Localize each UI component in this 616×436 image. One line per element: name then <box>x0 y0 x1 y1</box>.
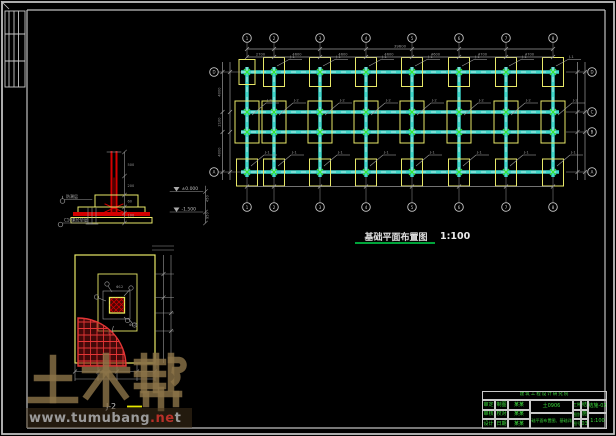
elevation-bottom-label: -1.500 <box>182 207 197 213</box>
svg-text:B: B <box>591 130 594 135</box>
drawing-number: 结施-03 <box>588 400 607 413</box>
svg-text:1: 1 <box>246 205 249 210</box>
svg-text:200: 200 <box>128 184 135 188</box>
callout-upper-label: 防潮层 <box>66 193 78 199</box>
svg-text:J-2: J-2 <box>525 98 531 103</box>
svg-text:J-1: J-1 <box>521 54 527 59</box>
svg-text:Φ12: Φ12 <box>116 285 123 289</box>
callout-bubble-icon <box>58 222 63 227</box>
svg-text:A: A <box>213 170 216 175</box>
svg-text:4000: 4000 <box>218 87 222 97</box>
svg-text:J-1: J-1 <box>291 150 297 155</box>
elevation-mark-icon <box>174 208 180 213</box>
svg-text:J-2: J-2 <box>293 98 299 103</box>
svg-text:J-2: J-2 <box>266 98 272 103</box>
svg-text:J-1: J-1 <box>474 54 480 59</box>
svg-text:3: 3 <box>319 205 322 210</box>
svg-text:J-2: J-2 <box>431 98 437 103</box>
foundation-section-detail: ±0.000 -1.500 500 200 60 100 450 950 防潮层… <box>58 150 209 227</box>
svg-text:J-1: J-1 <box>381 54 387 59</box>
svg-text:7: 7 <box>505 205 508 210</box>
svg-text:D: D <box>590 70 593 75</box>
watermark-logo-icon <box>76 316 128 366</box>
plan-scale: 1:100 <box>440 231 470 242</box>
svg-text:500: 500 <box>128 163 135 167</box>
svg-text:60: 60 <box>128 200 132 204</box>
svg-text:950: 950 <box>206 212 210 219</box>
svg-text:J-2: J-2 <box>478 98 484 103</box>
svg-text:4: 4 <box>365 205 368 210</box>
svg-text:J-1: J-1 <box>427 54 433 59</box>
svg-text:J-1: J-1 <box>476 150 482 155</box>
watermark-brand <box>31 356 184 408</box>
svg-text:2: 2 <box>273 205 276 210</box>
svg-text:J-2: J-2 <box>385 98 391 103</box>
svg-text:5: 5 <box>411 205 414 210</box>
project-number: 土0906 <box>530 400 573 413</box>
revision-table <box>5 11 25 87</box>
grid-bubbles: 1122334455667788DADCBA <box>210 34 597 212</box>
svg-text:6: 6 <box>458 205 461 210</box>
svg-text:J-1: J-1 <box>337 150 343 155</box>
svg-text:Φ12: Φ12 <box>129 323 136 327</box>
drawing-sheet: 1122334455667788DADCBA270046004600460046… <box>0 0 616 436</box>
svg-text:J-1: J-1 <box>570 150 576 155</box>
callout-lower-label: C10素砼垫层 <box>64 217 88 223</box>
elevation-mark-icon <box>174 187 180 192</box>
svg-text:A: A <box>591 170 594 175</box>
svg-text:2: 2 <box>273 36 276 41</box>
foundation-plan: 1122334455667788DADCBA270046004600460046… <box>210 34 597 212</box>
svg-text:J-1: J-1 <box>383 150 389 155</box>
plan-title-underline <box>355 242 435 244</box>
svg-text:8: 8 <box>552 205 555 210</box>
svg-text:4: 4 <box>365 36 368 41</box>
elevation-top-label: ±0.000 <box>182 186 199 192</box>
titleblock-scale: 1:100 <box>588 413 607 429</box>
svg-text:J-1: J-1 <box>429 150 435 155</box>
svg-text:6: 6 <box>458 36 461 41</box>
svg-text:J-1: J-1 <box>289 54 295 59</box>
svg-text:J-1: J-1 <box>335 54 341 59</box>
svg-text:450: 450 <box>206 195 210 202</box>
svg-text:J-2: J-2 <box>572 98 578 103</box>
svg-text:7: 7 <box>505 36 508 41</box>
cad-canvas: 1122334455667788DADCBA270046004600460046… <box>0 0 616 436</box>
svg-text:5: 5 <box>411 36 414 41</box>
svg-text:D: D <box>212 70 215 75</box>
svg-text:J-1: J-1 <box>568 54 574 59</box>
title-block: 建筑工程设计研究院 审定 制图 某某 审核 校对 某某 设计 日期 某某 土09… <box>482 391 607 429</box>
svg-text:8: 8 <box>552 36 555 41</box>
sheet-content-title: 基础平面布置图、基础详图 <box>530 413 573 429</box>
svg-text:2100: 2100 <box>218 117 222 127</box>
svg-text:4000: 4000 <box>218 147 222 157</box>
svg-text:J-1: J-1 <box>523 150 529 155</box>
callout-bubble-icon <box>60 199 65 204</box>
svg-text:C: C <box>591 110 594 115</box>
company-name: 建筑工程设计研究院 <box>482 391 607 400</box>
footing-base-slab <box>73 212 150 216</box>
watermark-url: www.tumubang.net <box>26 408 192 428</box>
svg-text:3: 3 <box>319 36 322 41</box>
svg-text:1: 1 <box>246 36 249 41</box>
svg-text:39600: 39600 <box>394 44 407 49</box>
footing-pads <box>235 58 565 187</box>
svg-text:100: 100 <box>128 214 135 218</box>
svg-text:J-2: J-2 <box>339 98 345 103</box>
svg-text:J-1: J-1 <box>264 150 270 155</box>
svg-text:2700: 2700 <box>256 53 266 57</box>
